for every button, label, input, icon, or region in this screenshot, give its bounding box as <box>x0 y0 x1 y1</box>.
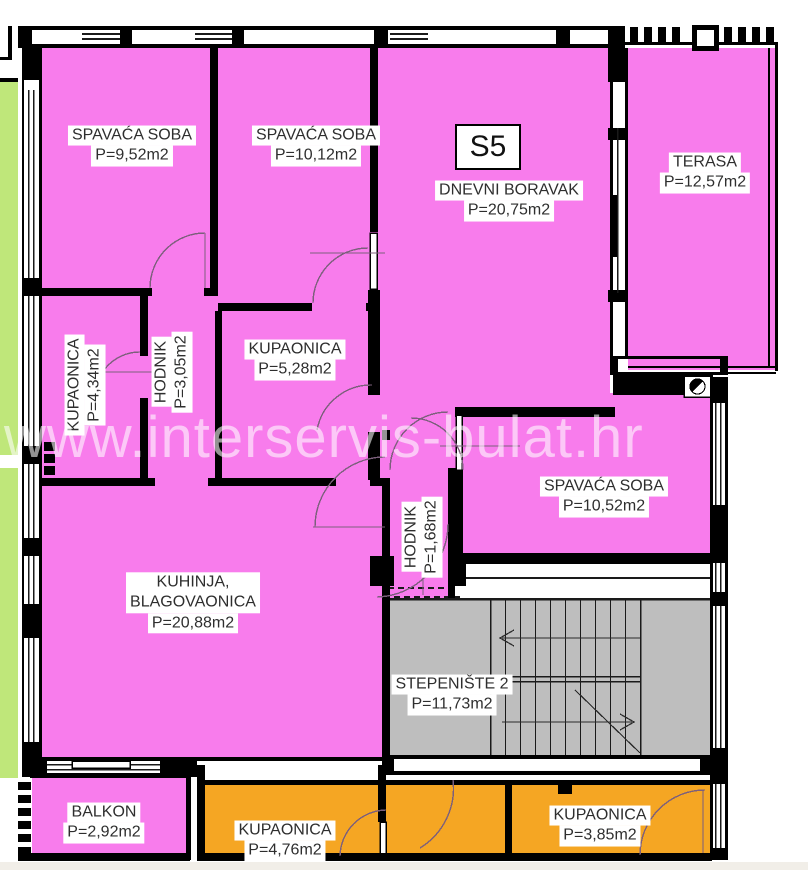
room-name: KUPAONICA <box>234 821 335 841</box>
room-area: P=2,92m2 <box>63 823 144 843</box>
room-label-hall1: HODNIK P=3,05m2 <box>152 331 193 412</box>
staircase-graphics <box>384 588 710 757</box>
room-name: KUHINJA, BLAGOVAONICA <box>126 572 260 613</box>
room-name: HODNIK <box>402 502 422 572</box>
room-label-balcony: BALKON P=2,92m2 <box>63 803 144 844</box>
room-label-hall2: HODNIK P=1,68m2 <box>402 496 443 577</box>
room-area: P=9,52m2 <box>91 146 172 166</box>
room-area: P=20,75m2 <box>464 201 554 221</box>
room-area: P=10,12m2 <box>271 146 361 166</box>
room-area: P=20,88m2 <box>148 613 238 633</box>
room-name: KUPAONICA <box>244 340 345 360</box>
room-label-living: DNEVNI BORAVAK P=20,75m2 <box>435 181 583 222</box>
room-label-bath1: KUPAONICA P=4,34m2 <box>65 334 106 435</box>
room-name: HODNIK <box>152 337 172 407</box>
room-label-bedroom3: SPAVAĆA SOBA P=10,52m2 <box>540 477 668 518</box>
room-area: P=10,52m2 <box>559 497 649 517</box>
room-name: SPAVAĆA SOBA <box>68 126 196 146</box>
room-area: P=12,57m2 <box>660 173 750 193</box>
room-name: SPAVAĆA SOBA <box>540 477 668 497</box>
room-name: KUPAONICA <box>549 806 650 826</box>
floor-plan: S5 SPAVAĆA SOBA P=9,52m2 SPAVAĆA SOBA P=… <box>0 0 808 870</box>
room-label-bedroom1: SPAVAĆA SOBA P=9,52m2 <box>68 126 196 167</box>
room-area: P=4,76m2 <box>244 841 325 861</box>
room-label-bath2: KUPAONICA P=5,28m2 <box>244 340 345 381</box>
room-area: P=4,34m2 <box>85 344 105 425</box>
room-name: KUPAONICA <box>65 334 85 435</box>
room-area: P=3,85m2 <box>559 826 640 846</box>
room-area: P=5,28m2 <box>254 360 335 380</box>
room-label-kitchen: KUHINJA, BLAGOVAONICA P=20,88m2 <box>126 572 260 633</box>
room-name: SPAVAĆA SOBA <box>252 126 380 146</box>
room-name: STEPENIŠTE 2 <box>392 675 513 695</box>
room-area: P=11,73m2 <box>407 695 496 715</box>
room-label-bath3: KUPAONICA P=4,76m2 <box>234 821 335 862</box>
room-label-terrace: TERASA P=12,57m2 <box>660 153 750 194</box>
room-name: DNEVNI BORAVAK <box>435 181 583 201</box>
room-name: TERASA <box>669 153 741 173</box>
room-area: P=1,68m2 <box>422 496 442 577</box>
room-area: P=3,05m2 <box>172 331 192 412</box>
unit-label: S5 <box>455 124 521 170</box>
room-label-bedroom2: SPAVAĆA SOBA P=10,12m2 <box>252 126 380 167</box>
room-label-staircase: STEPENIŠTE 2 P=11,73m2 <box>392 675 513 716</box>
room-name: BALKON <box>68 803 141 823</box>
room-label-bath4: KUPAONICA P=3,85m2 <box>549 806 650 847</box>
